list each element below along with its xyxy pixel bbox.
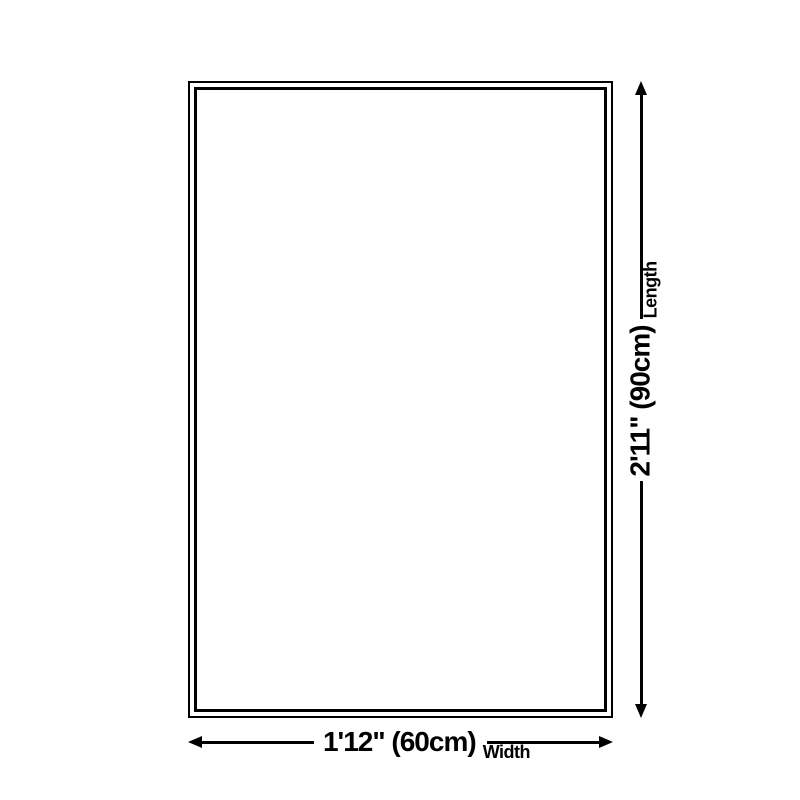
arrow-right-icon [599, 736, 613, 748]
width-value: 1'12" (60cm) [323, 726, 476, 758]
length-label: Length [641, 261, 662, 318]
rug-outer-border [188, 81, 613, 718]
length-label-group: 2'11" (90cm) Length [628, 319, 654, 481]
arrow-down-icon [635, 704, 647, 718]
width-dimension: 1'12" (60cm) Width [188, 729, 613, 755]
arrow-left-icon [188, 736, 202, 748]
length-rotated-label: 2'11" (90cm) Length [625, 323, 657, 476]
rug-inner-border [194, 87, 607, 712]
length-dimension: 2'11" (90cm) Length [628, 81, 654, 718]
width-label: Width [483, 742, 530, 763]
dimension-line-horizontal-left [202, 741, 314, 744]
size-diagram: 2'11" (90cm) Length 1'12" (60cm) Width [0, 0, 800, 800]
width-label-group: 1'12" (60cm) Width [314, 726, 487, 758]
length-value: 2'11" (90cm) [625, 325, 657, 476]
dimension-line-vertical-bottom [640, 481, 643, 705]
arrow-up-icon [635, 81, 647, 95]
